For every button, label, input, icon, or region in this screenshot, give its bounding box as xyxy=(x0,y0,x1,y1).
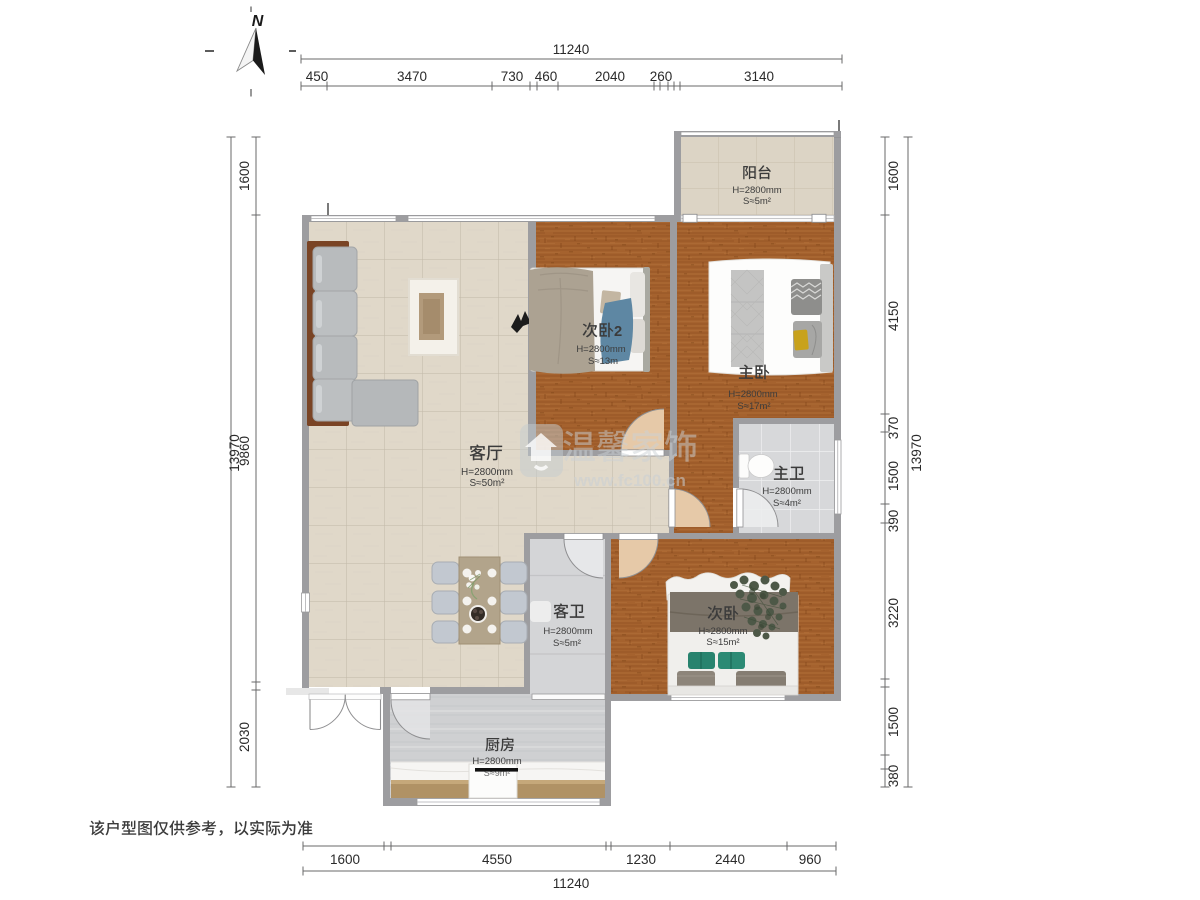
svg-text:H=2800mm: H=2800mm xyxy=(472,756,521,767)
svg-text:2040: 2040 xyxy=(595,69,625,84)
svg-text:S≈13m: S≈13m xyxy=(588,356,618,367)
svg-text:S≈4m²: S≈4m² xyxy=(773,498,801,509)
svg-text:1500: 1500 xyxy=(886,461,901,491)
svg-text:730: 730 xyxy=(501,69,524,84)
svg-text:H=2800mm: H=2800mm xyxy=(461,467,513,478)
svg-text:S≈15m²: S≈15m² xyxy=(706,637,739,648)
svg-text:2: 2 xyxy=(614,324,622,340)
svg-text:H=2800mm: H=2800mm xyxy=(543,626,592,637)
svg-text:390: 390 xyxy=(886,510,901,533)
svg-text:1230: 1230 xyxy=(626,852,656,867)
svg-text:3140: 3140 xyxy=(744,69,774,84)
svg-text:H=2800mm: H=2800mm xyxy=(728,389,777,400)
svg-text:11240: 11240 xyxy=(553,42,590,57)
svg-text:2440: 2440 xyxy=(715,852,745,867)
svg-text:4550: 4550 xyxy=(482,852,512,867)
svg-text:13970: 13970 xyxy=(909,434,924,472)
svg-text:4150: 4150 xyxy=(886,301,901,331)
svg-text:S≈5m²: S≈5m² xyxy=(553,638,581,649)
svg-text:H=2800mm: H=2800mm xyxy=(576,344,625,355)
svg-text:2030: 2030 xyxy=(237,722,252,752)
svg-text:1500: 1500 xyxy=(886,707,901,737)
svg-text:1600: 1600 xyxy=(886,161,901,191)
svg-text:H=2800mm: H=2800mm xyxy=(762,486,811,497)
svg-text:1600: 1600 xyxy=(237,161,252,191)
svg-text:S≈50m²: S≈50m² xyxy=(470,478,506,489)
svg-text:S≈5m²: S≈5m² xyxy=(743,196,771,207)
svg-text:S≈17m²: S≈17m² xyxy=(737,401,770,412)
svg-text:380: 380 xyxy=(886,765,901,788)
svg-text:3220: 3220 xyxy=(886,598,901,628)
svg-text:260: 260 xyxy=(650,69,673,84)
svg-text:960: 960 xyxy=(799,852,822,867)
svg-text:3470: 3470 xyxy=(397,69,427,84)
svg-text:370: 370 xyxy=(886,417,901,440)
svg-text:450: 450 xyxy=(306,69,329,84)
svg-text:460: 460 xyxy=(535,69,558,84)
svg-text:www.fc100.cn: www.fc100.cn xyxy=(573,471,686,490)
svg-text:13970: 13970 xyxy=(227,434,242,472)
svg-text:11240: 11240 xyxy=(553,876,590,891)
svg-text:N: N xyxy=(252,13,264,30)
svg-text:H=2800mm: H=2800mm xyxy=(732,185,781,196)
svg-text:H≈2800mm: H≈2800mm xyxy=(698,626,747,637)
svg-text:1600: 1600 xyxy=(330,852,360,867)
